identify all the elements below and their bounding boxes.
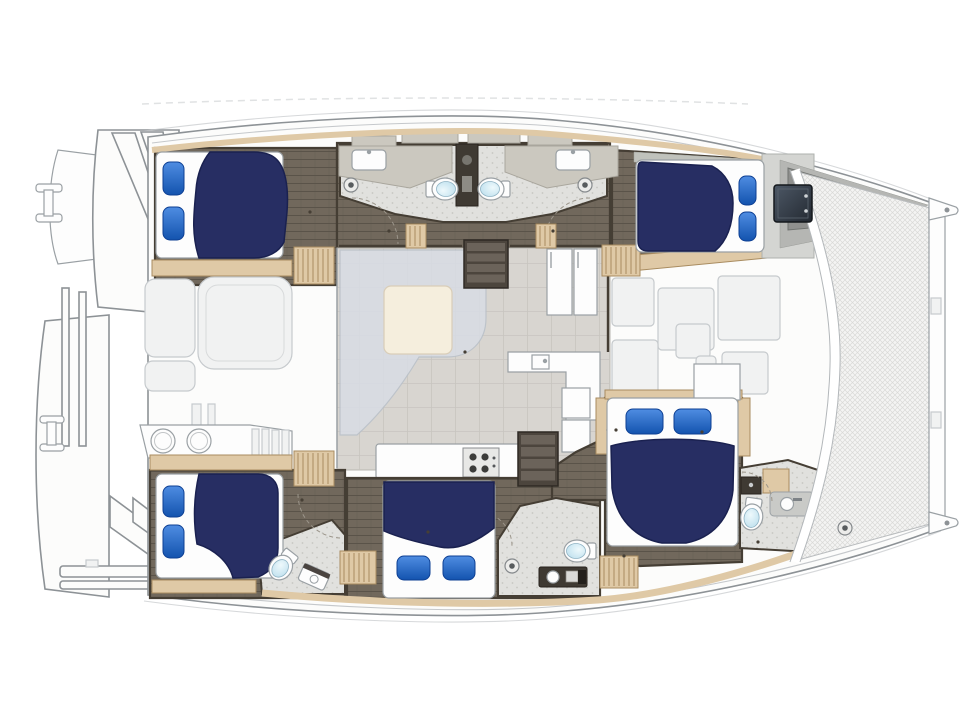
berth-shelf [152, 580, 256, 593]
pillow [163, 525, 184, 558]
stairs-dark [464, 240, 508, 288]
floor-dot [622, 554, 625, 557]
fridge-handle [550, 252, 552, 268]
ladder-fitting [86, 560, 98, 567]
shower-drain [344, 178, 358, 192]
shower-divider-column [456, 144, 478, 206]
berth-shelf [150, 455, 292, 470]
duvet [638, 162, 733, 251]
salon-table [384, 286, 452, 354]
floorplan-canvas [0, 0, 971, 728]
floor-dot [700, 430, 703, 433]
stairs-wood [600, 556, 638, 588]
floor-dot [756, 540, 759, 543]
pillow [163, 162, 184, 195]
toilet-port-head-fwd [478, 178, 510, 200]
floor-dot [426, 530, 429, 533]
faucet [571, 150, 575, 154]
stairs-wood [406, 224, 426, 248]
cockpit-seat [145, 361, 195, 391]
stairs-wood [602, 245, 640, 276]
pillow [443, 556, 475, 580]
toilet-port-head-aft [426, 178, 458, 200]
stove [463, 448, 499, 477]
stairs-wood [340, 551, 376, 584]
pillow [674, 409, 711, 434]
cockpit-bench [145, 279, 195, 357]
toilet-lid [437, 182, 456, 197]
aft-cockpit [140, 277, 292, 458]
toilet-stbd-mid-head [564, 540, 596, 562]
louver-vent [252, 429, 259, 455]
wall-locker [352, 136, 396, 146]
pillow [163, 486, 184, 517]
beam-fitting [931, 298, 941, 314]
pillow [163, 207, 184, 240]
fwd-cabin-wardrobe [694, 364, 740, 400]
galley-cabinet [562, 388, 590, 418]
beam-fitting [931, 412, 941, 428]
bed-stbd-fwd-berth [607, 398, 738, 546]
stbd-mid-head-vanity [539, 567, 587, 587]
tv-screen [774, 185, 812, 222]
floor-dot [308, 210, 311, 213]
bed-port-fwd-berth [636, 160, 764, 252]
shower-drain [505, 559, 519, 573]
floor-dot [614, 428, 617, 431]
faucet [367, 150, 371, 154]
stairs-dark [518, 432, 558, 486]
floor-dot [387, 229, 390, 232]
pillow [626, 409, 663, 434]
galley-island [376, 444, 528, 479]
bed-stbd-aft-berth [156, 474, 283, 578]
bed-stbd-mid-berth [383, 481, 495, 598]
berth-frame [738, 398, 750, 456]
louver-vent [272, 430, 279, 455]
starboard-bow-tip [929, 512, 958, 534]
louver-vent [282, 430, 289, 455]
fridge-handle [577, 252, 579, 268]
floor-dot [463, 350, 466, 353]
duvet [611, 439, 734, 543]
port-bow-tip [929, 198, 958, 220]
pillow [397, 556, 430, 580]
cockpit-table [198, 277, 292, 369]
stairs-wood [294, 247, 334, 284]
toilet-lid [481, 182, 500, 197]
bow-fitting [945, 208, 950, 213]
floor-dot [300, 498, 303, 501]
shower-drain [838, 521, 852, 535]
pillow [739, 212, 756, 241]
net-beam-front [929, 205, 945, 527]
duvet [384, 482, 494, 548]
bow-fitting [945, 521, 950, 526]
yacht-floorplan [0, 0, 971, 728]
duvet [194, 152, 288, 258]
stairs-wood [294, 451, 334, 486]
berth-frame [596, 398, 608, 454]
deck-hatch [718, 276, 780, 340]
bed-port-aft-berth [156, 152, 288, 258]
floor-dot [551, 229, 554, 232]
pillow [739, 176, 756, 205]
berth-shelf [152, 260, 292, 276]
hardtop-outline [142, 98, 748, 104]
deck-hatch [612, 278, 654, 326]
faucet [543, 359, 547, 363]
stern-rail [79, 292, 86, 446]
toilet-lid [567, 544, 586, 559]
louver-vent [262, 429, 269, 455]
shower-drain [578, 178, 592, 192]
deck-hatch [676, 324, 710, 358]
stairs-wood [536, 224, 556, 248]
